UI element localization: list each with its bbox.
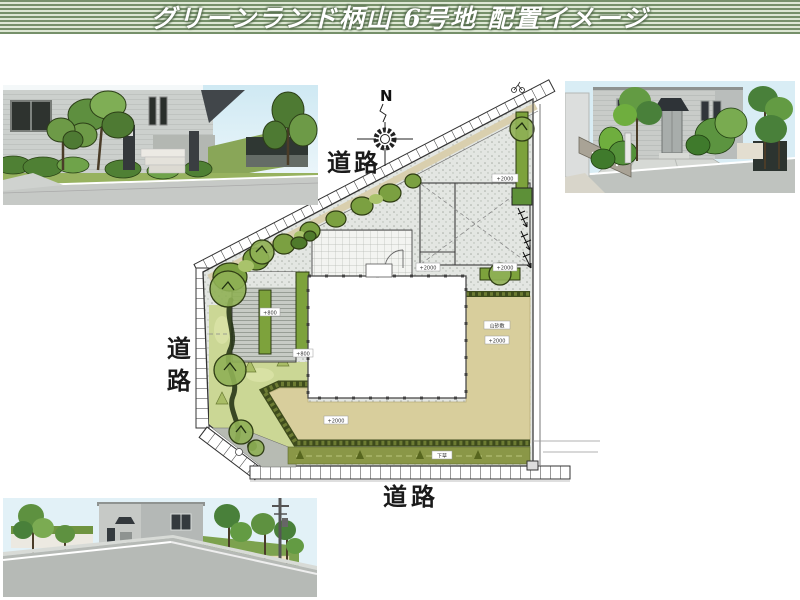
elevation-label: +800 — [260, 308, 280, 317]
render-photo-top-right — [565, 81, 795, 193]
svg-text:+2000: +2000 — [497, 266, 514, 272]
building-footprint — [308, 264, 466, 398]
elevation-label: +2000 — [492, 174, 518, 183]
svg-text:下草: 下草 — [437, 453, 447, 460]
svg-text:+2000: +2000 — [328, 419, 345, 425]
compass-n-label: N — [380, 87, 393, 105]
function-pole — [625, 133, 631, 163]
svg-text:+2000: +2000 — [420, 266, 437, 272]
elevation-label: +2000 — [485, 336, 509, 345]
svg-text:+800: +800 — [263, 311, 277, 317]
material-label: 下草 — [432, 451, 452, 460]
entrance-approach — [312, 230, 412, 276]
page-title: グリーンランド柄山 6号地 配置イメージ — [151, 0, 649, 35]
sidewalk-bottom — [250, 466, 570, 481]
svg-text:+800: +800 — [296, 352, 310, 358]
svg-text:+2000: +2000 — [489, 339, 506, 345]
elevation-label: +800 — [293, 349, 313, 358]
elevation-label: +2000 — [324, 416, 348, 425]
title-bar: グリーンランド柄山 6号地 配置イメージ — [0, 0, 800, 34]
svg-text:山砂敷: 山砂敷 — [489, 323, 504, 330]
road-label-left: 道路 — [163, 336, 189, 400]
svg-text:+2000: +2000 — [497, 177, 514, 183]
render-photo-bottom-left — [3, 498, 317, 597]
bicycle-icon — [512, 82, 525, 93]
elevation-label: +2000 — [493, 263, 517, 272]
road-label-top: 道路 — [327, 150, 381, 176]
material-label: 山砂敷 — [484, 321, 510, 330]
elevation-label: +2000 — [416, 263, 440, 272]
road-label-bottom: 道路 — [383, 484, 439, 510]
render-photo-top-left — [3, 85, 318, 205]
undergrowth-band — [288, 447, 530, 464]
